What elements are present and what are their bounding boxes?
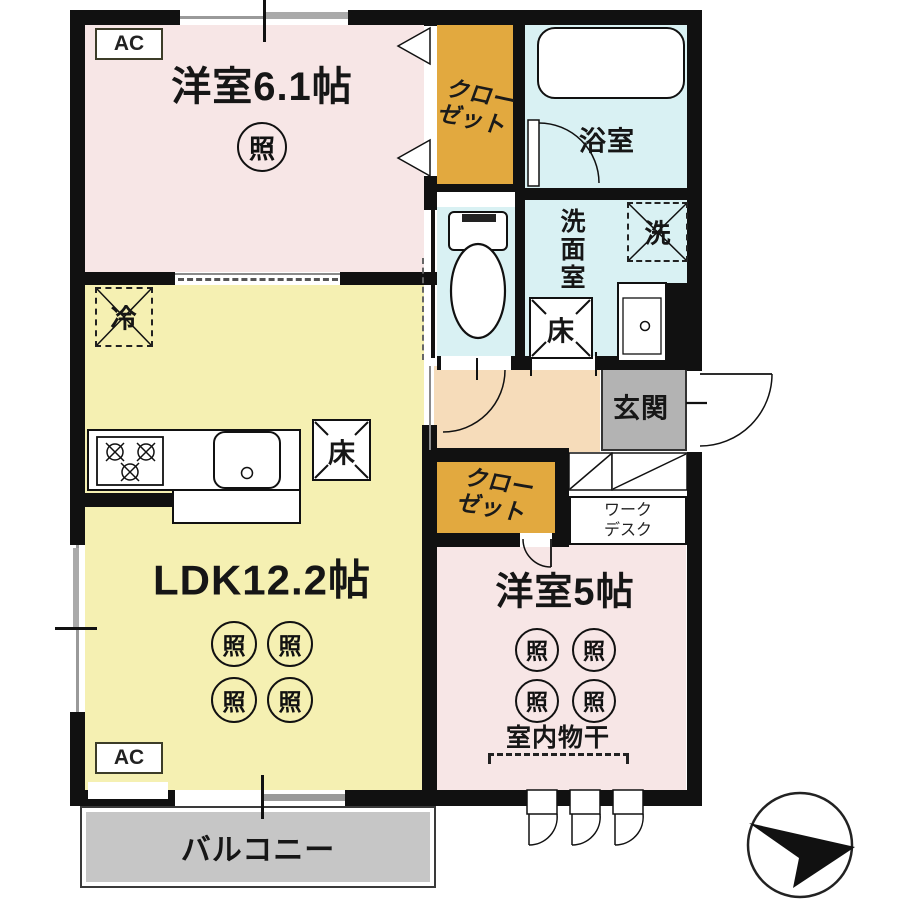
light-ldk-1: 照 — [211, 621, 257, 667]
north-arrow-compass — [748, 793, 855, 897]
desk-label-line1: ワーク — [604, 501, 652, 521]
ac-unit-bedroom1: AC — [95, 28, 163, 60]
toilet-bowl-icon — [451, 244, 505, 338]
light-ldk-4: 照 — [267, 677, 313, 723]
ac-label: AC — [114, 746, 144, 770]
toilet-lid-icon — [462, 214, 496, 222]
bathroom-label: 浴室 — [579, 120, 635, 159]
washer-label: 洗 — [644, 214, 671, 251]
toilet-door-arc — [443, 370, 505, 432]
bedroom2-windows — [527, 790, 643, 845]
light-bedroom2-3: 照 — [515, 679, 559, 723]
bedroom1-name: 洋室6.1帖 — [171, 54, 353, 112]
kitchen-counter-return — [173, 490, 300, 523]
desk-label-line2: デスク — [604, 521, 652, 541]
bedroom2-name: 洋室5帖 — [495, 561, 634, 616]
fridge-label: 冷 — [110, 299, 137, 336]
sink-icon — [214, 432, 280, 488]
entrance-label: 玄関 — [613, 387, 669, 426]
indoor-drying-label: 室内物干 — [506, 718, 610, 754]
light-bedroom2-1: 照 — [515, 628, 559, 672]
shoe-cabinet — [569, 453, 687, 490]
ldk-name: LDK12.2帖 — [153, 547, 371, 608]
work-desk: ワーク デスク — [569, 496, 687, 545]
light-bedroom2-4: 照 — [572, 679, 616, 723]
light-ldk-3: 照 — [211, 677, 257, 723]
ac-unit-ldk: AC — [95, 742, 163, 774]
closet1-door-triangle-bottom — [398, 140, 430, 176]
closet1-door-triangle-top — [398, 28, 430, 64]
floor-plan: AC AC 洋室6.1帖 LDK12.2帖 洋室5帖 浴室 洗面室 玄関 バルコ… — [0, 0, 900, 900]
bathroom-door-leaf — [528, 120, 539, 186]
washroom-label: 洗面室 — [553, 208, 589, 292]
light-bedroom1: 照 — [237, 122, 287, 172]
floor-hatch-washroom-label: 床 — [547, 310, 575, 349]
floor-hatch-ldk-label: 床 — [328, 432, 356, 471]
ac-label: AC — [114, 32, 144, 56]
bathtub-icon — [538, 28, 684, 98]
entrance-door-arc — [700, 374, 772, 446]
light-ldk-2: 照 — [267, 621, 313, 667]
light-bedroom2-2: 照 — [572, 628, 616, 672]
balcony-label: バルコニー — [181, 825, 335, 869]
